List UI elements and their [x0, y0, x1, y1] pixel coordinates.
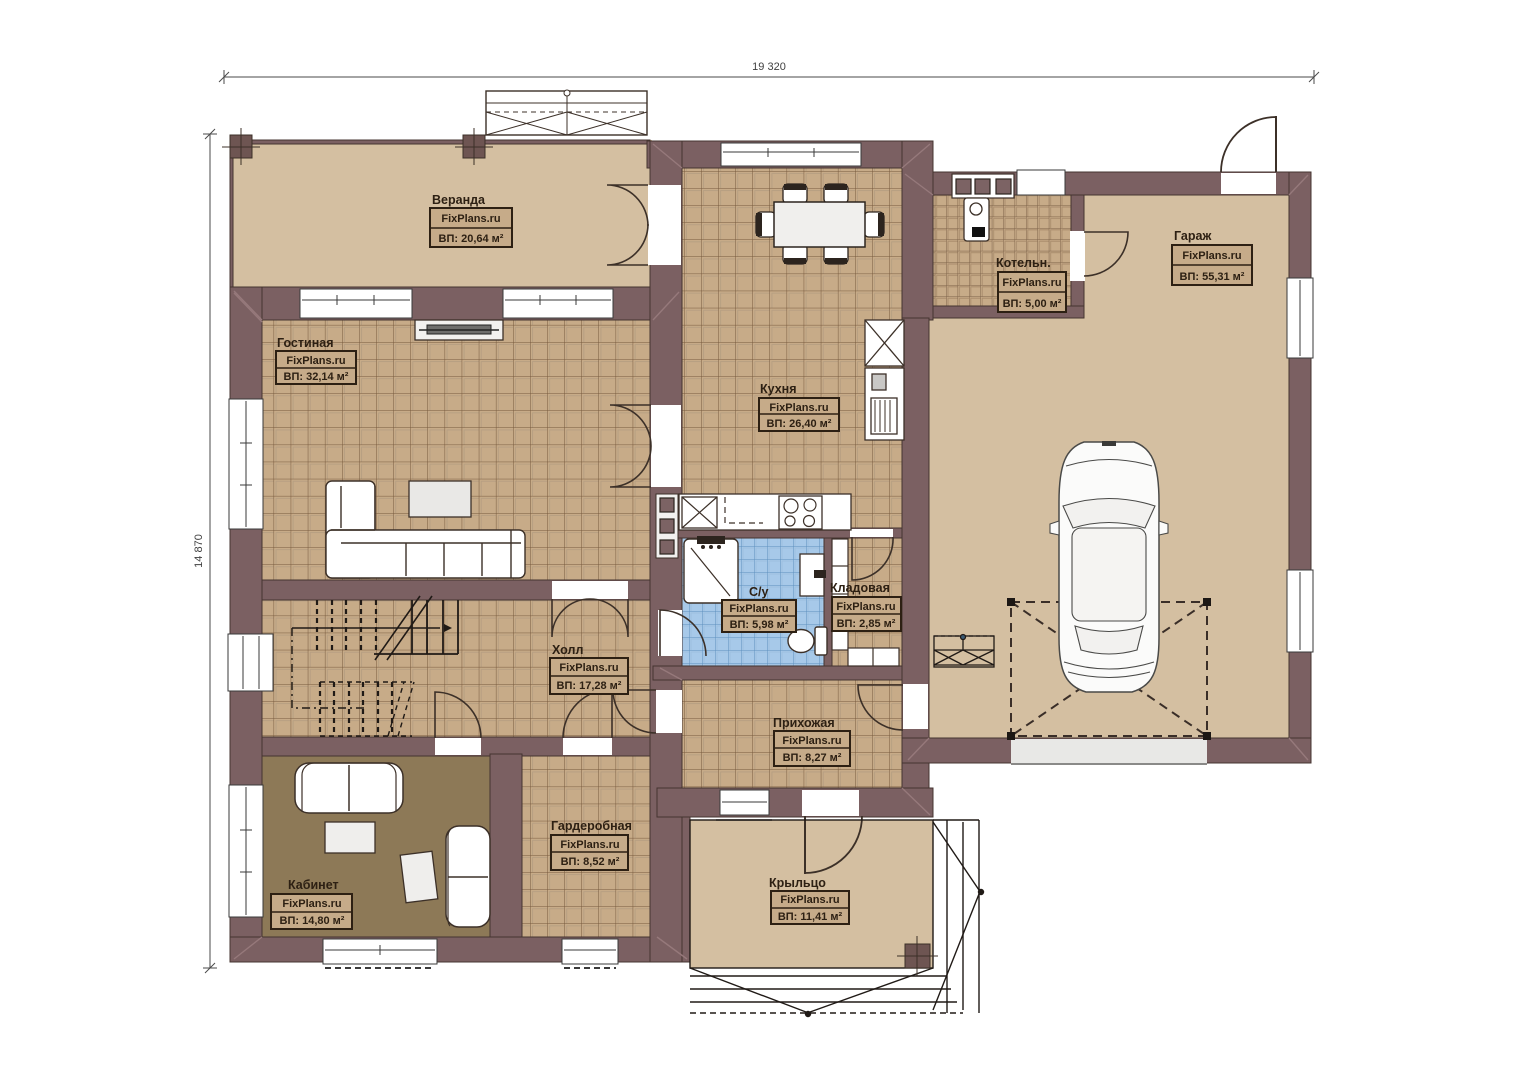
- svg-text:FixPlans.ru: FixPlans.ru: [560, 839, 619, 851]
- svg-text:ВП: 20,64 м²: ВП: 20,64 м²: [439, 233, 504, 245]
- svg-text:FixPlans.ru: FixPlans.ru: [282, 898, 341, 910]
- svg-text:FixPlans.ru: FixPlans.ru: [836, 601, 895, 613]
- svg-text:ВП: 17,28 м²: ВП: 17,28 м²: [557, 680, 622, 692]
- svg-text:FixPlans.ru: FixPlans.ru: [1182, 250, 1241, 262]
- svg-text:Гараж: Гараж: [1174, 229, 1211, 243]
- svg-text:С/у: С/у: [749, 585, 769, 599]
- svg-text:Кабинет: Кабинет: [288, 878, 339, 892]
- svg-text:ВП: 26,40 м²: ВП: 26,40 м²: [767, 418, 832, 430]
- svg-text:FixPlans.ru: FixPlans.ru: [1002, 277, 1061, 289]
- svg-text:ВП: 2,85 м²: ВП: 2,85 м²: [837, 618, 896, 630]
- svg-text:ВП: 5,98 м²: ВП: 5,98 м²: [730, 619, 789, 631]
- svg-text:Гардеробная: Гардеробная: [551, 819, 632, 833]
- svg-text:ВП: 8,52 м²: ВП: 8,52 м²: [561, 856, 620, 868]
- svg-text:ВП: 11,41 м²: ВП: 11,41 м²: [778, 911, 843, 923]
- svg-text:FixPlans.ru: FixPlans.ru: [559, 662, 618, 674]
- svg-text:FixPlans.ru: FixPlans.ru: [286, 355, 345, 367]
- svg-text:Кладовая: Кладовая: [830, 581, 890, 595]
- svg-text:14 870: 14 870: [193, 534, 205, 568]
- svg-text:FixPlans.ru: FixPlans.ru: [780, 894, 839, 906]
- svg-text:Холл: Холл: [552, 643, 583, 657]
- svg-text:Прихожая: Прихожая: [773, 716, 835, 730]
- svg-text:FixPlans.ru: FixPlans.ru: [782, 735, 841, 747]
- svg-text:Гостиная: Гостиная: [277, 336, 334, 350]
- svg-text:ВП: 8,27 м²: ВП: 8,27 м²: [783, 752, 842, 764]
- svg-text:ВП: 14,80 м²: ВП: 14,80 м²: [280, 915, 345, 927]
- svg-text:FixPlans.ru: FixPlans.ru: [441, 213, 500, 225]
- svg-text:ВП: 32,14 м²: ВП: 32,14 м²: [284, 371, 349, 383]
- svg-text:Котельн.: Котельн.: [996, 256, 1051, 270]
- svg-text:ВП: 55,31 м²: ВП: 55,31 м²: [1180, 271, 1245, 283]
- svg-text:ВП: 5,00 м²: ВП: 5,00 м²: [1003, 298, 1062, 310]
- svg-text:Крыльцо: Крыльцо: [769, 876, 826, 890]
- svg-text:19 320: 19 320: [752, 61, 786, 73]
- svg-text:Кухня: Кухня: [760, 382, 797, 396]
- svg-text:Веранда: Веранда: [432, 193, 486, 207]
- svg-text:FixPlans.ru: FixPlans.ru: [769, 402, 828, 414]
- svg-text:FixPlans.ru: FixPlans.ru: [729, 603, 788, 615]
